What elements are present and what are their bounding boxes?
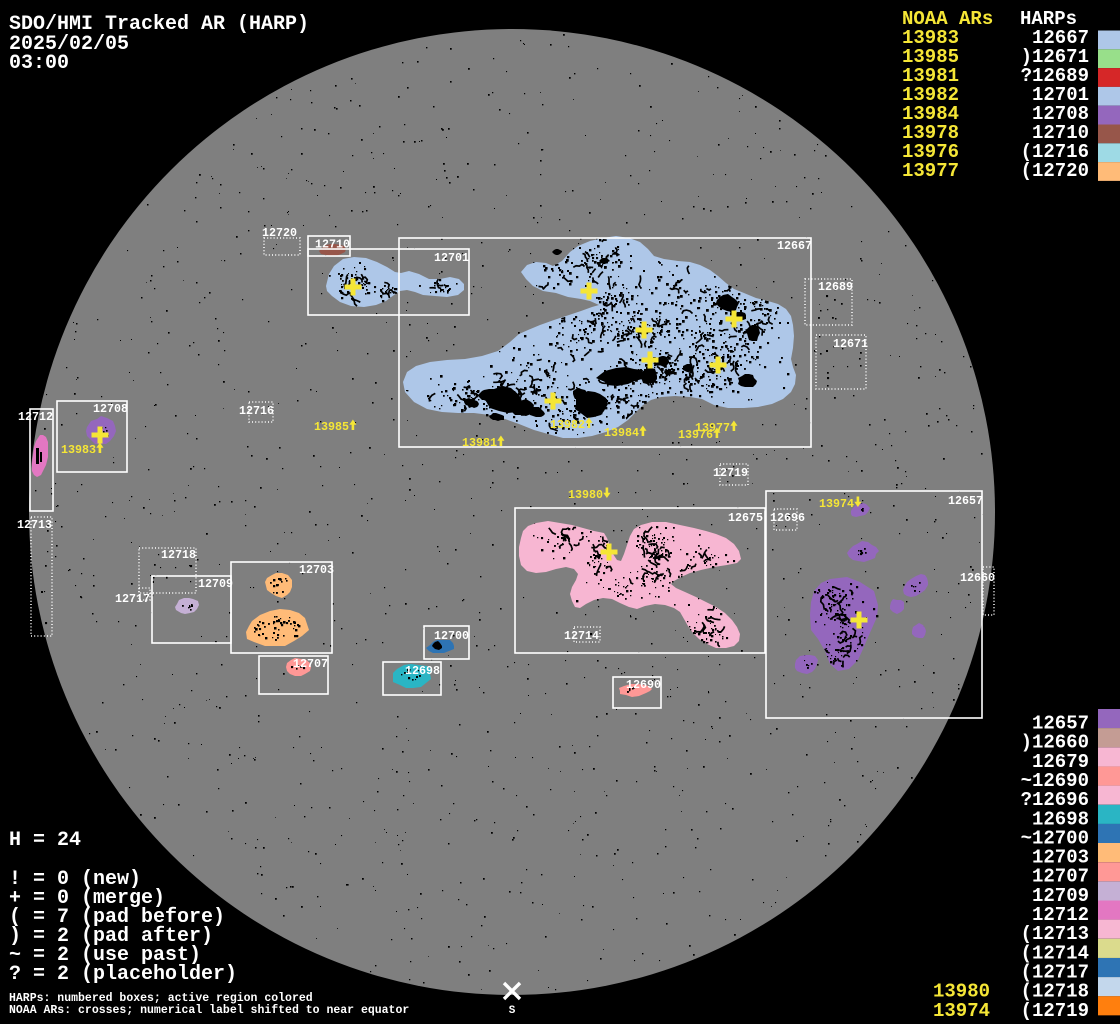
svg-text:12713: 12713 [17, 518, 52, 532]
svg-text:12707: 12707 [293, 657, 328, 671]
svg-text:13983: 13983 [61, 443, 96, 457]
svg-text:12667: 12667 [777, 239, 812, 253]
svg-text:H = 24: H = 24 [9, 829, 81, 852]
svg-text:12689: 12689 [818, 280, 853, 294]
svg-text:12718: 12718 [161, 548, 196, 562]
svg-text:13985: 13985 [314, 420, 349, 434]
svg-text:12716: 12716 [239, 404, 274, 418]
svg-text:12703: 12703 [299, 563, 334, 577]
svg-text:12712: 12712 [18, 410, 53, 424]
svg-text:13974: 13974 [819, 497, 854, 511]
svg-text:13981: 13981 [462, 436, 497, 450]
svg-text:13974: 13974 [933, 1000, 990, 1022]
svg-text:13977: 13977 [902, 160, 959, 182]
svg-text:? = 2 (placeholder): ? = 2 (placeholder) [9, 963, 237, 986]
svg-text:12710: 12710 [315, 238, 350, 252]
svg-text:13982: 13982 [550, 418, 585, 432]
svg-text:12675: 12675 [728, 511, 763, 525]
svg-text:12701: 12701 [434, 251, 469, 265]
svg-text:12717: 12717 [115, 592, 150, 606]
svg-text:12671: 12671 [833, 337, 868, 351]
svg-text:12657: 12657 [948, 494, 983, 508]
svg-text:S: S [509, 1005, 516, 1017]
svg-text:03:00: 03:00 [9, 52, 69, 75]
svg-text:12696: 12696 [770, 511, 805, 525]
svg-text:12690: 12690 [626, 678, 661, 692]
svg-text:12698: 12698 [405, 664, 440, 678]
svg-text:NOAA ARs: crosses; numerical l: NOAA ARs: crosses; numerical label shift… [9, 1004, 409, 1017]
svg-text:13984: 13984 [604, 426, 639, 440]
svg-text:12709: 12709 [198, 577, 233, 591]
svg-text:(12719: (12719 [1021, 1000, 1089, 1022]
svg-text:12708: 12708 [93, 402, 128, 416]
svg-text:13980: 13980 [568, 488, 603, 502]
svg-text:(12720: (12720 [1021, 160, 1089, 182]
svg-text:12719: 12719 [713, 466, 748, 480]
svg-text:12720: 12720 [262, 226, 297, 240]
svg-text:13977: 13977 [695, 421, 730, 435]
svg-text:12700: 12700 [434, 629, 469, 643]
svg-text:12714: 12714 [564, 629, 599, 643]
svg-text:12660: 12660 [960, 571, 995, 585]
